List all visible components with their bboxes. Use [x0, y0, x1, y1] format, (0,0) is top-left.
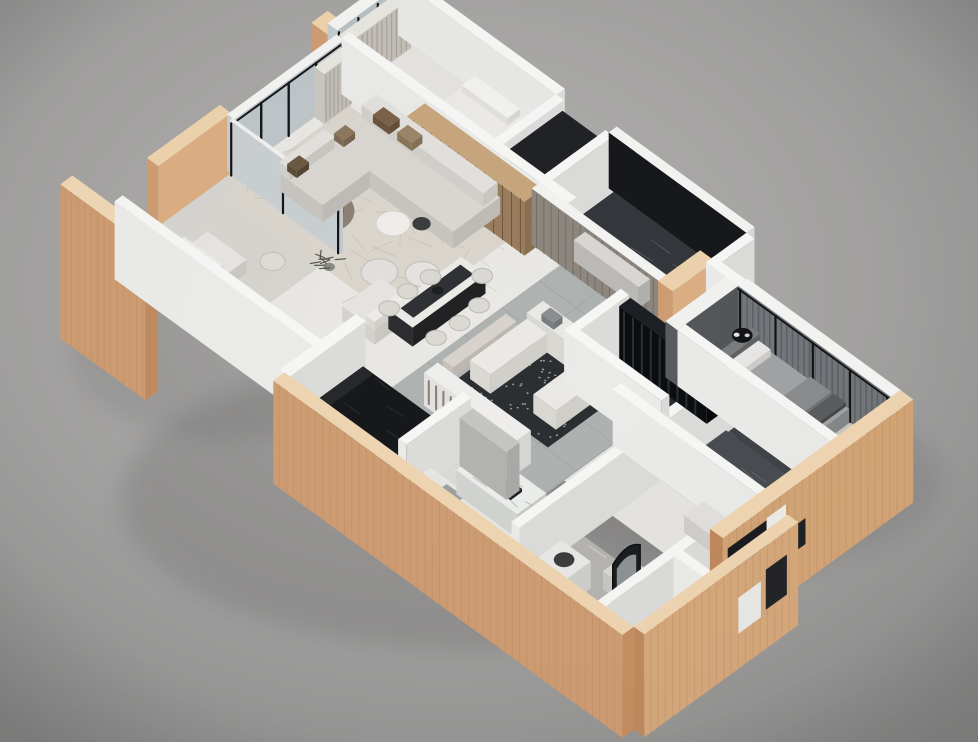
dining-bowl: [432, 286, 443, 294]
dining-chair-7: [472, 268, 493, 283]
dining-chair-4: [426, 330, 447, 345]
master-cup-2: [745, 334, 750, 338]
coffee-table: [376, 211, 410, 236]
dining-chair-2: [397, 284, 418, 299]
balcony-pouf: [260, 252, 285, 270]
floor-plan-stage: [0, 0, 978, 742]
dining-chair-5: [449, 316, 470, 331]
dining-chair-1: [379, 301, 400, 316]
dining-chair-6: [469, 298, 490, 313]
master-cup-1: [734, 333, 740, 337]
floor-plan-3d-render: [0, 0, 978, 742]
plant-pot: [323, 263, 334, 271]
dining-chair-3: [420, 270, 441, 285]
side-table-dark: [412, 217, 430, 230]
washer-door: [554, 552, 575, 567]
